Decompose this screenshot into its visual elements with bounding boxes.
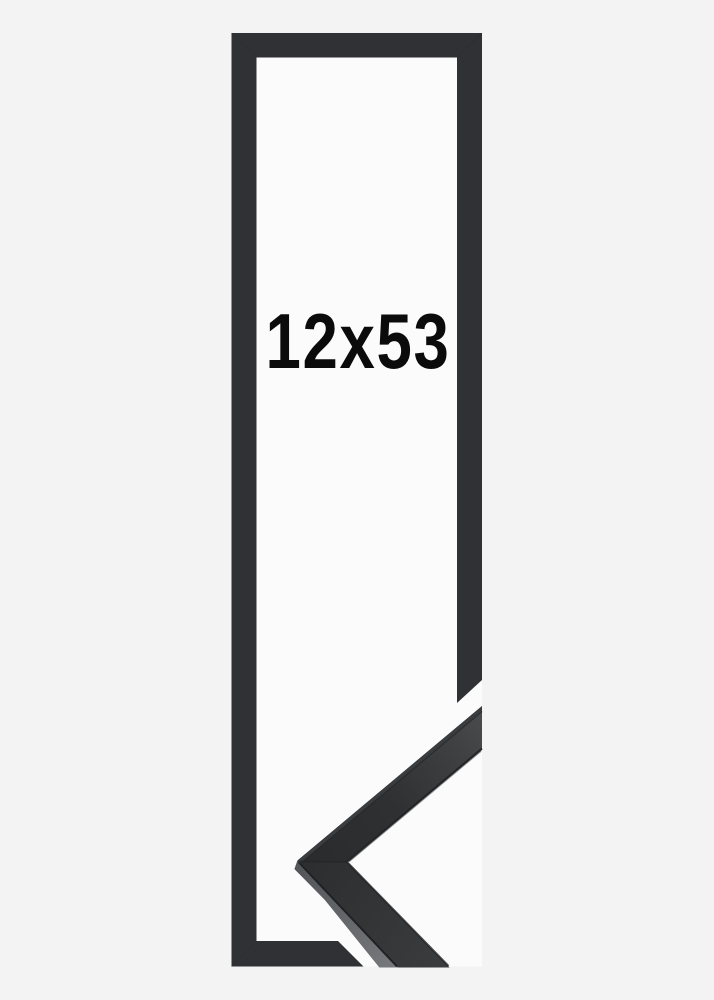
svg-text:12x53: 12x53 [266, 299, 451, 386]
